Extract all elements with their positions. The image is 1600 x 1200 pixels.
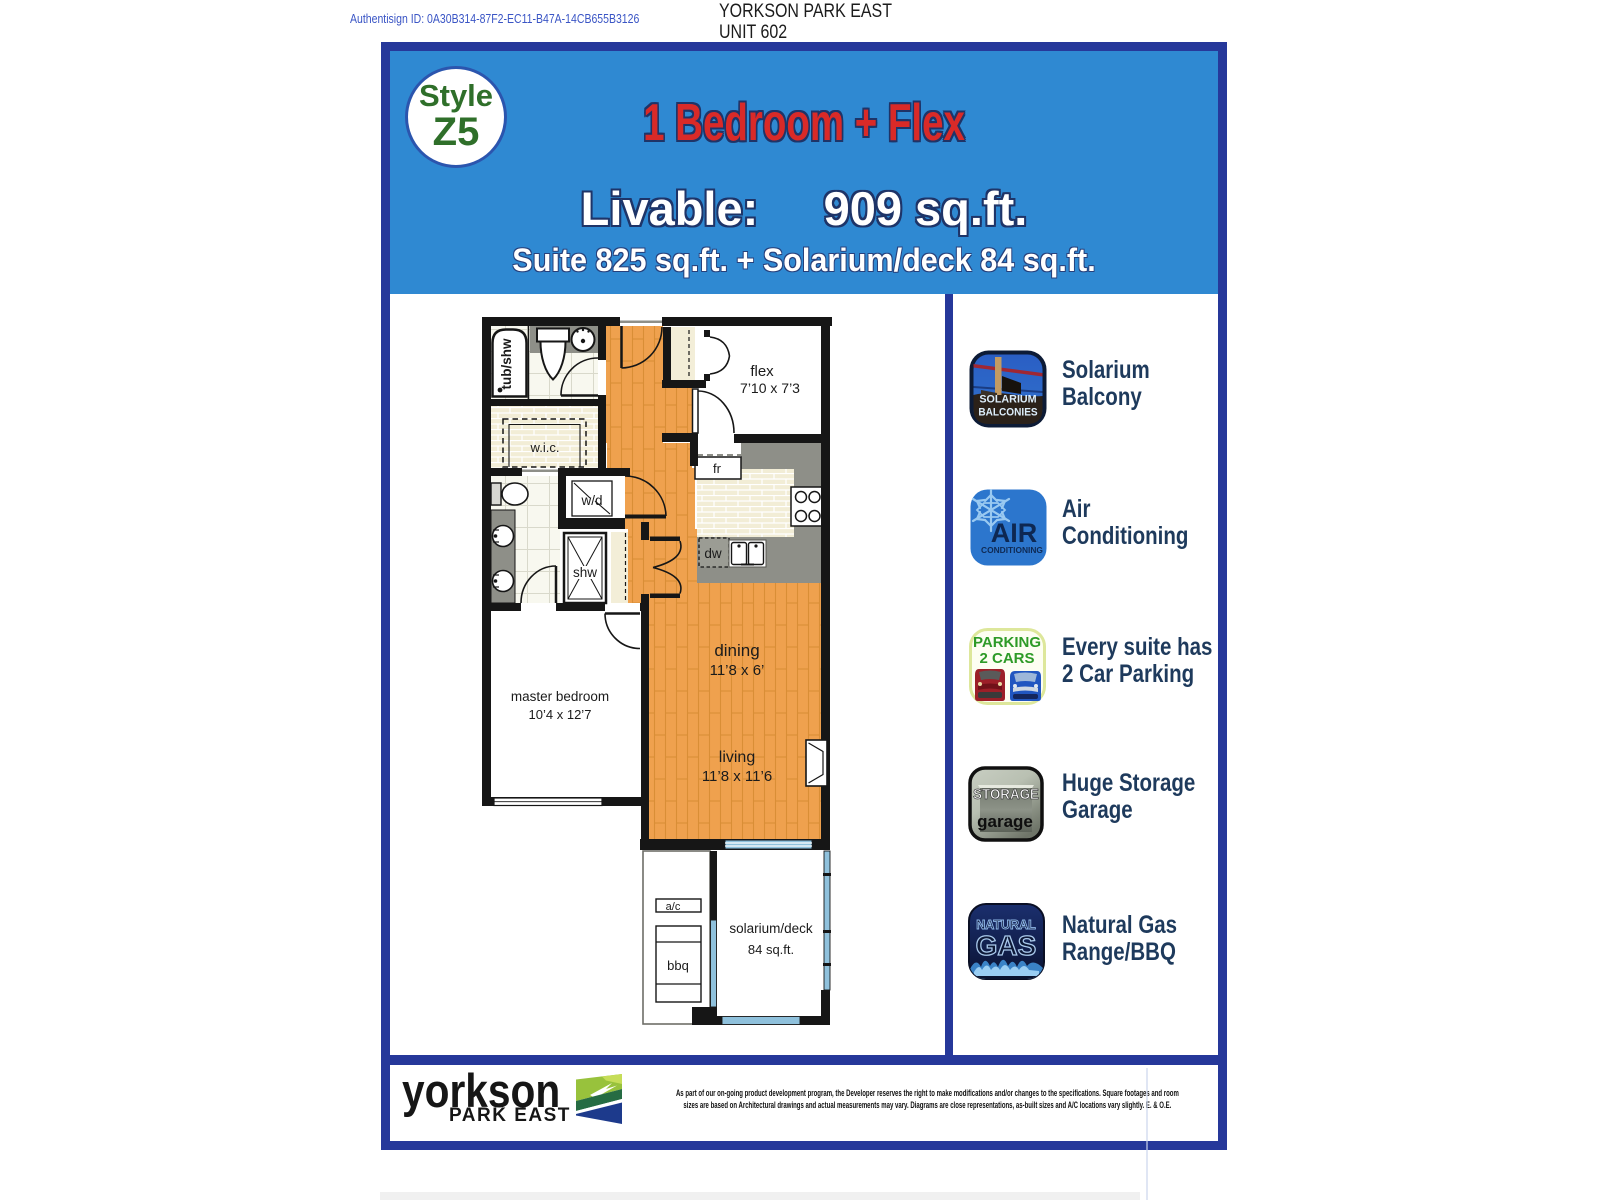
- svg-text:SOLARIUM: SOLARIUM: [979, 393, 1036, 405]
- svg-text:7’10 x 7’3: 7’10 x 7’3: [740, 380, 800, 396]
- svg-text:84 sq.ft.: 84 sq.ft.: [748, 942, 794, 957]
- svg-text:garage: garage: [977, 812, 1033, 831]
- svg-text:w.i.c.: w.i.c.: [530, 440, 560, 455]
- svg-text:dining: dining: [714, 641, 759, 660]
- svg-text:11’8 x 11’6: 11’8 x 11’6: [702, 768, 772, 785]
- svg-text:BALCONIES: BALCONIES: [978, 406, 1037, 419]
- svg-text:shw: shw: [573, 565, 597, 580]
- svg-text:fr: fr: [713, 461, 722, 476]
- svg-text:10’4 x 12’7: 10’4 x 12’7: [529, 707, 592, 722]
- svg-text:STORAGE: STORAGE: [973, 785, 1039, 802]
- svg-text:master bedroom: master bedroom: [511, 689, 609, 704]
- svg-text:GAS: GAS: [976, 930, 1037, 961]
- svg-text:2 CARS: 2 CARS: [979, 650, 1034, 667]
- svg-text:living: living: [719, 749, 755, 766]
- svg-text:PARKING: PARKING: [973, 634, 1041, 651]
- svg-text:dw: dw: [704, 546, 722, 561]
- svg-text:w/d: w/d: [580, 493, 602, 508]
- svg-text:CONDITIONING: CONDITIONING: [981, 545, 1043, 555]
- svg-text:tub/shw: tub/shw: [499, 338, 514, 389]
- svg-text:flex: flex: [750, 363, 774, 380]
- svg-text:11’8 x 6’: 11’8 x 6’: [710, 662, 765, 679]
- svg-text:a/c: a/c: [666, 901, 681, 913]
- svg-text:bbq: bbq: [667, 958, 689, 973]
- svg-text:solarium/deck: solarium/deck: [729, 921, 813, 936]
- svg-text:AIR: AIR: [991, 518, 1038, 548]
